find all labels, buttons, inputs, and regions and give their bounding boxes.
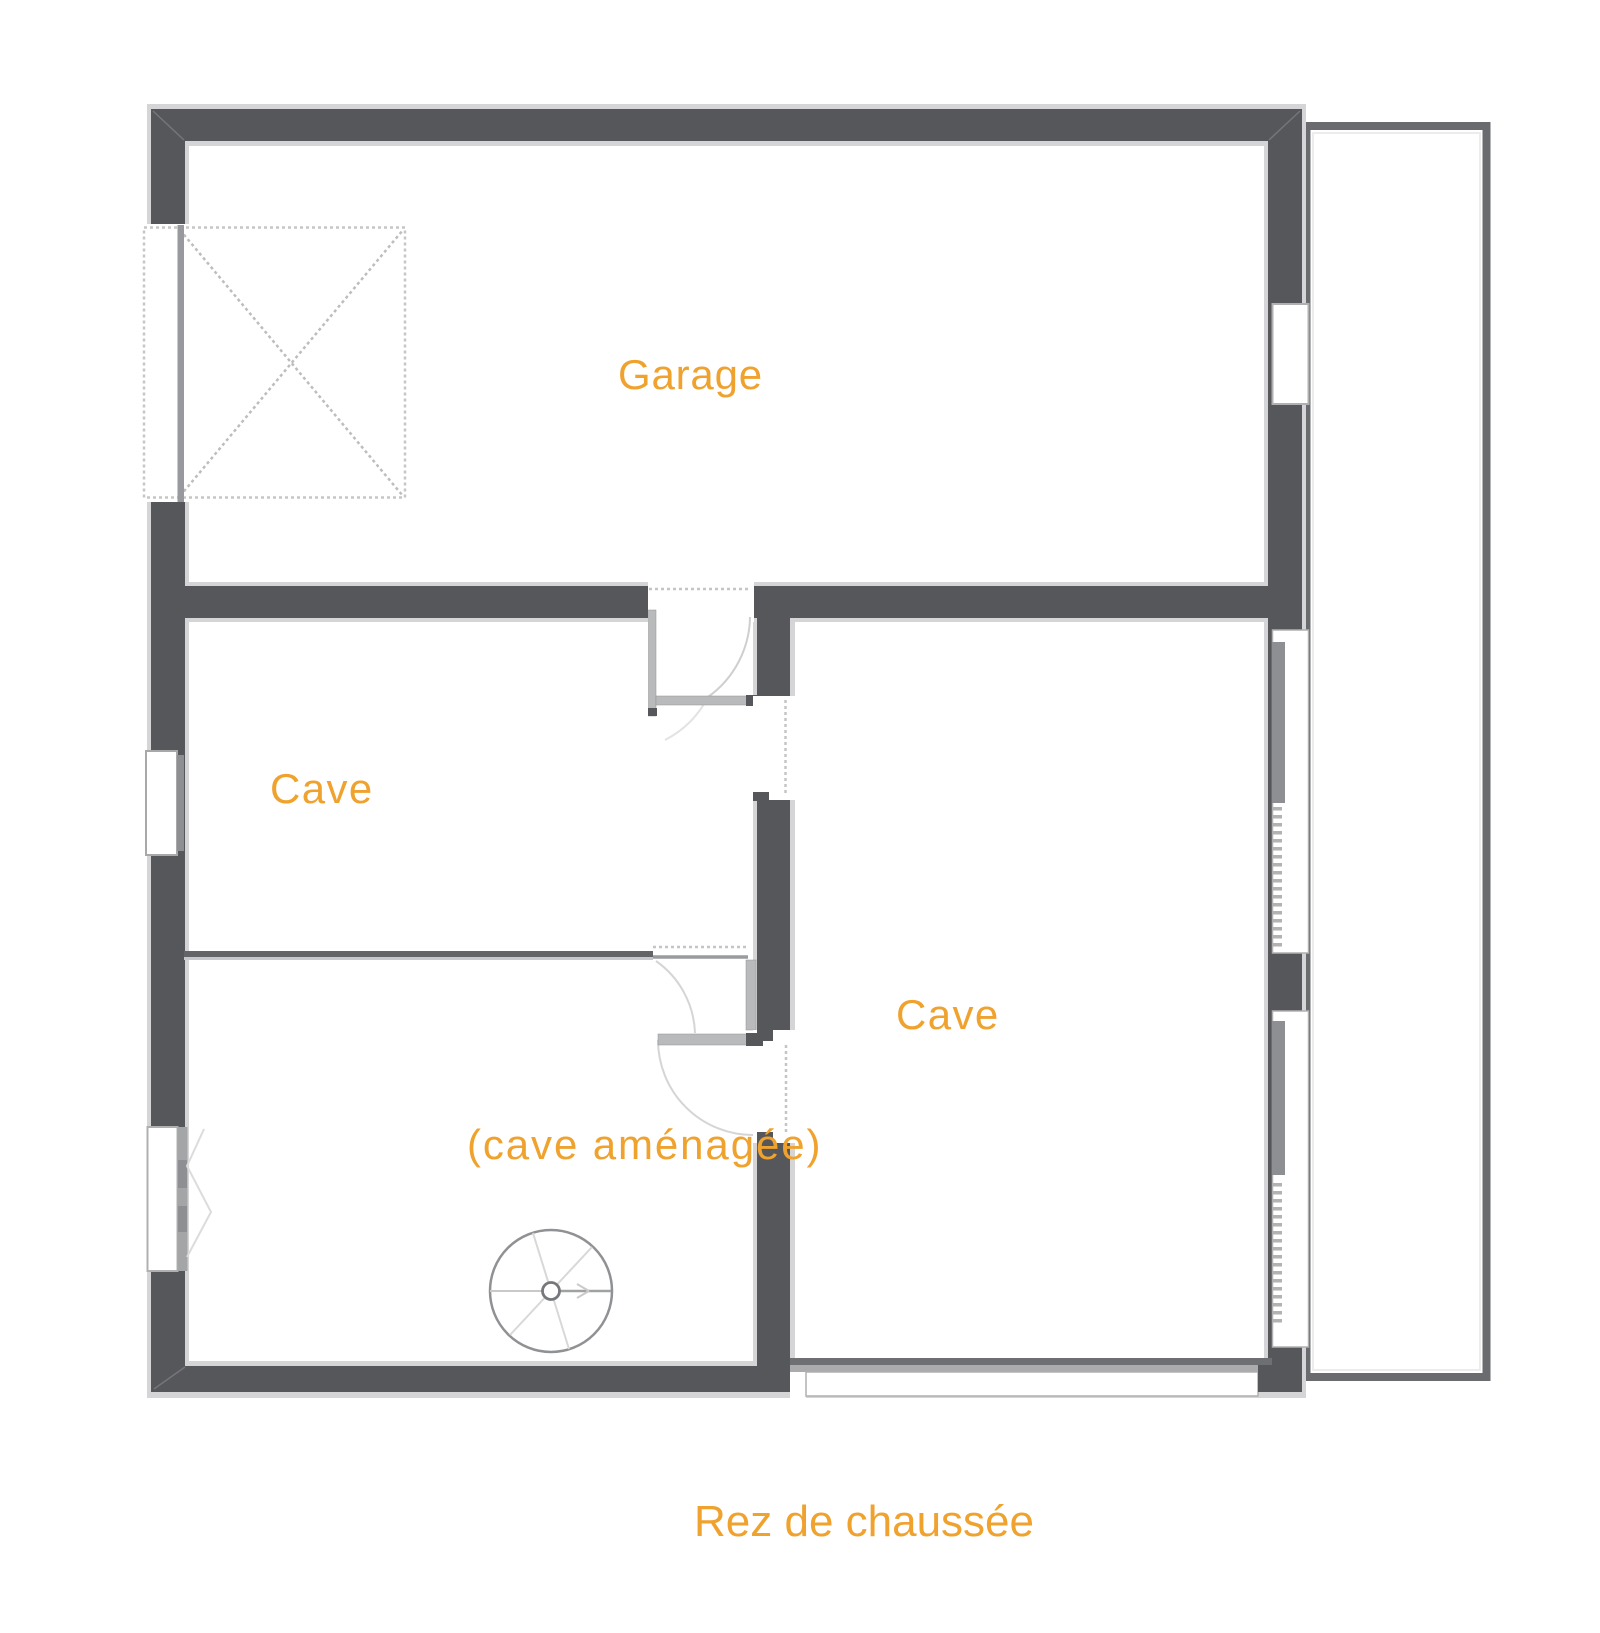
svg-text:Garage: Garage (618, 351, 763, 398)
svg-text:Rez de chaussée: Rez de chaussée (694, 1497, 1034, 1546)
svg-text:Cave: Cave (270, 765, 374, 812)
svg-text:Cave: Cave (896, 991, 1000, 1038)
svg-text:(cave aménagée): (cave aménagée) (467, 1121, 822, 1168)
